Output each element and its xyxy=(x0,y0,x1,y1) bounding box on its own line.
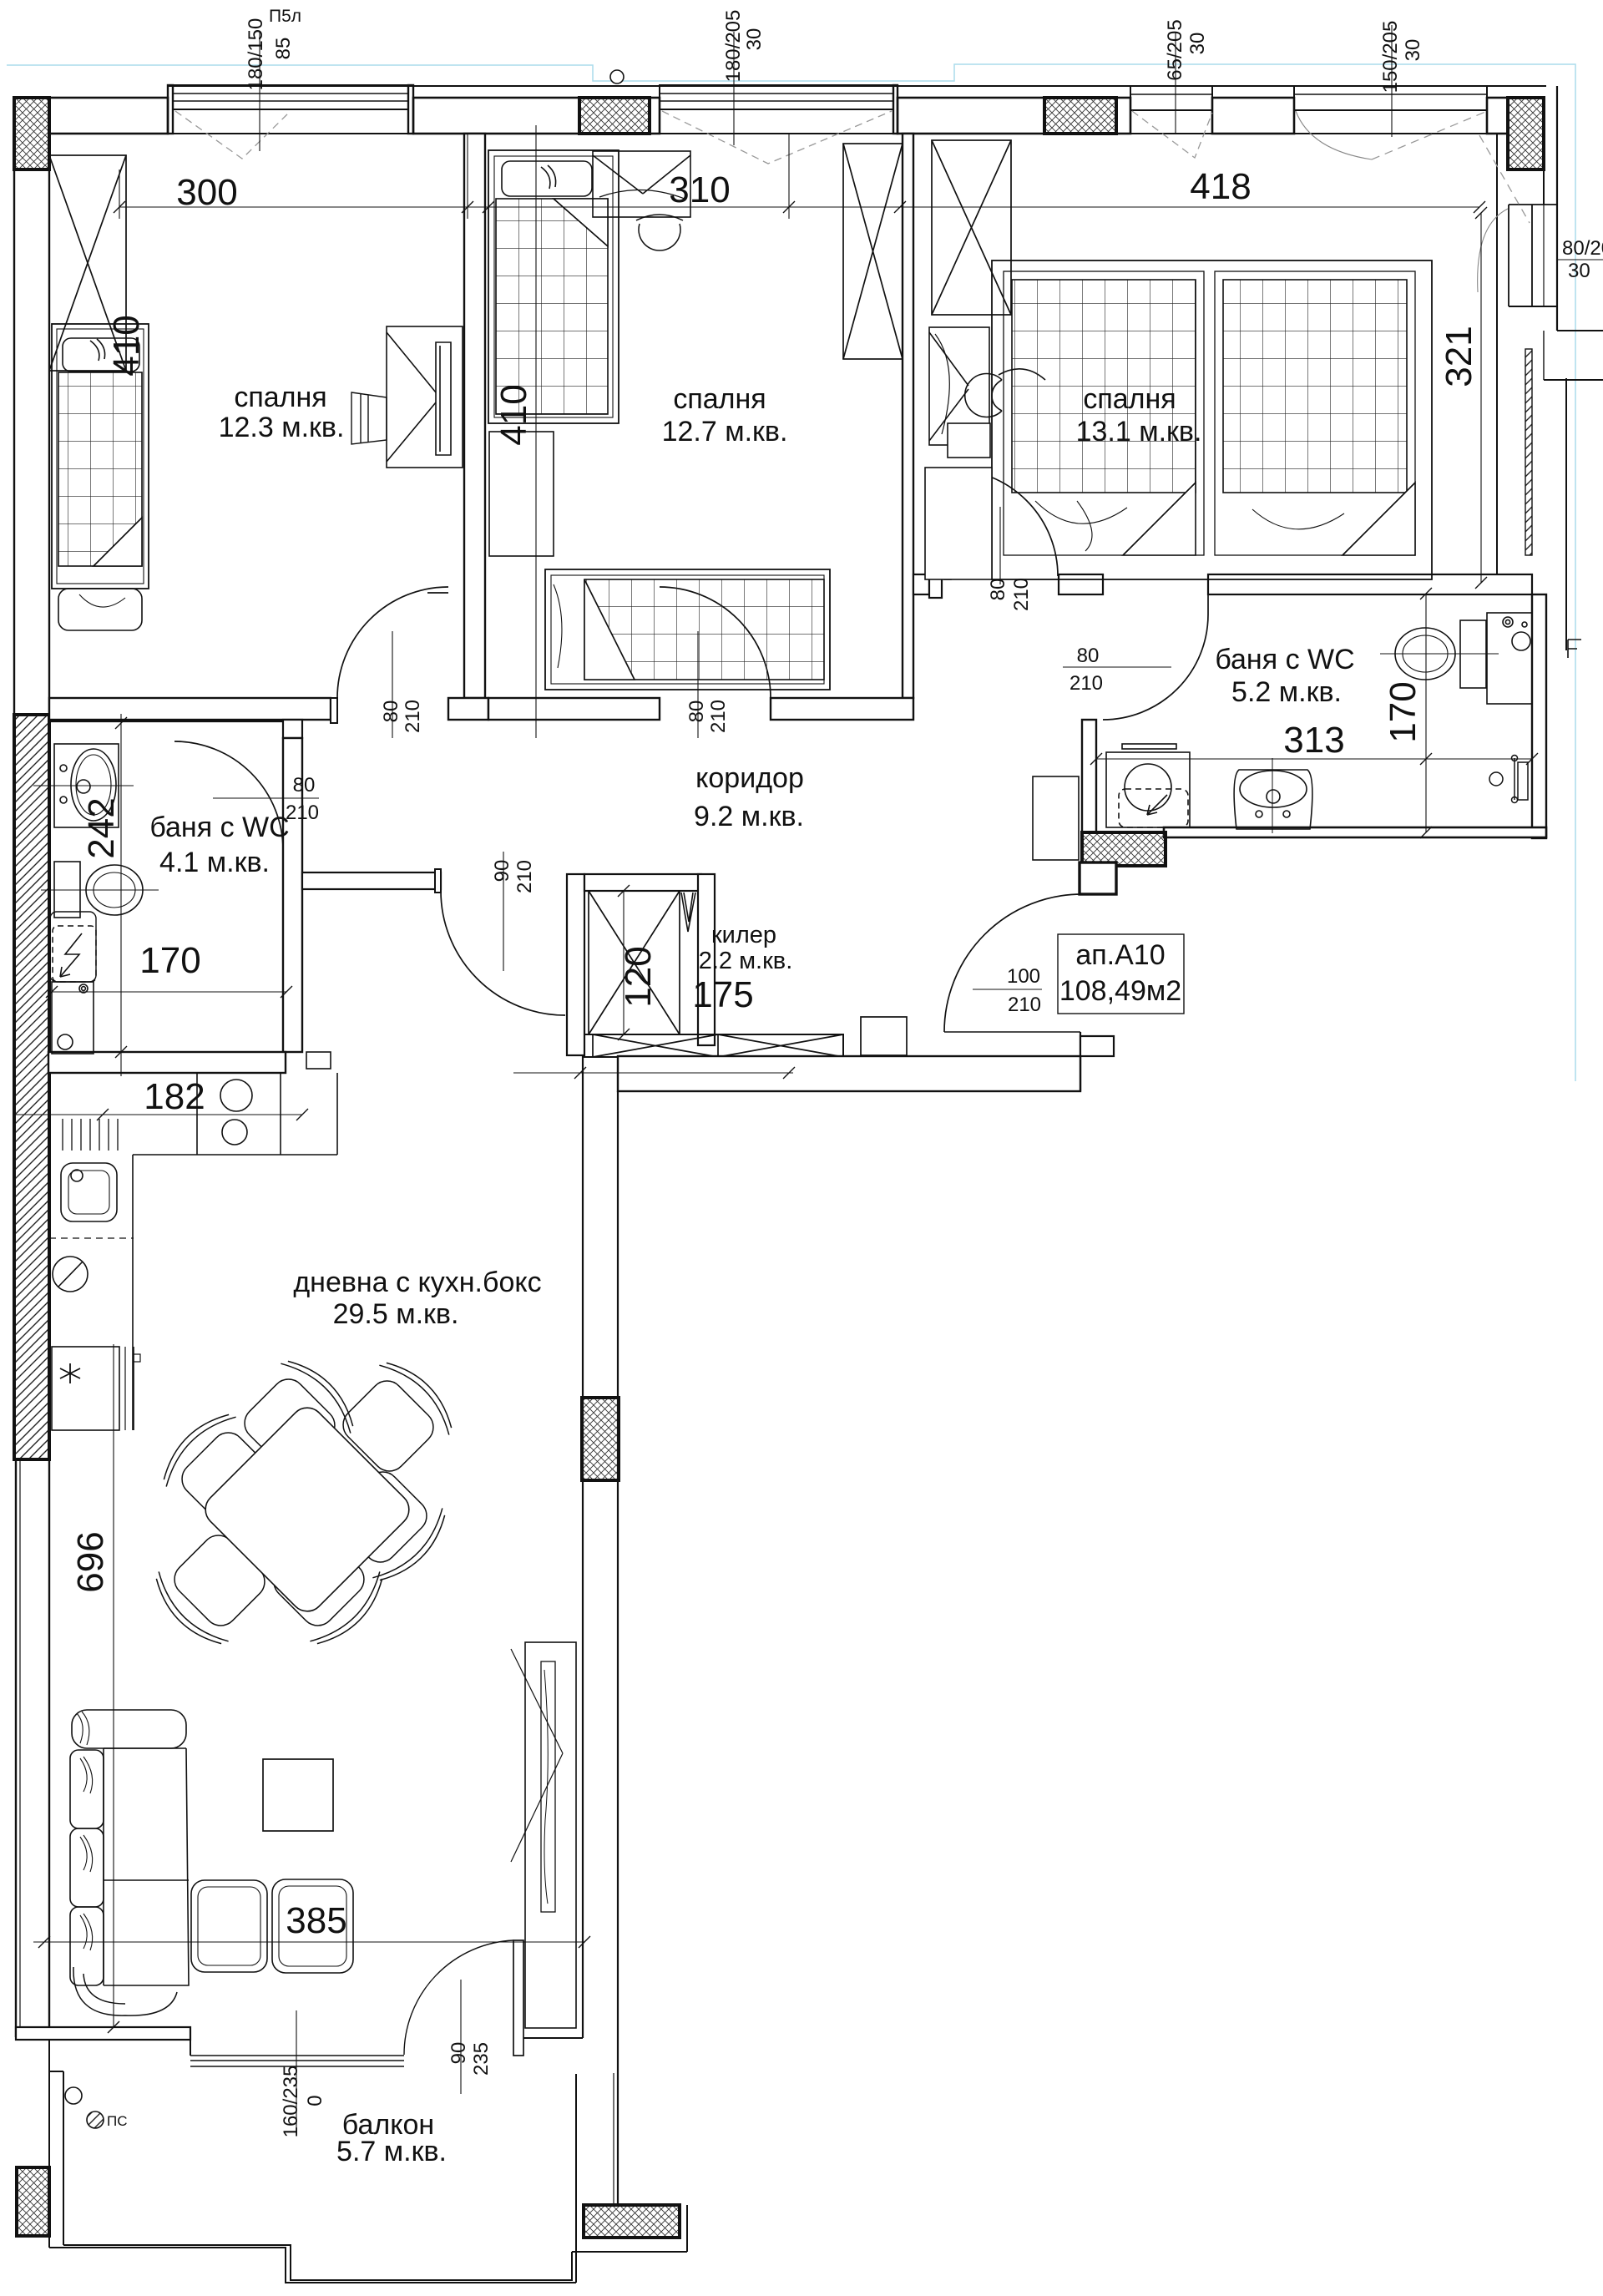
svg-text:29.5 м.кв.: 29.5 м.кв. xyxy=(333,1298,459,1330)
svg-text:коридор: коридор xyxy=(695,762,804,794)
svg-text:85: 85 xyxy=(272,38,295,60)
svg-text:баня с WC: баня с WC xyxy=(149,812,289,843)
svg-text:418: 418 xyxy=(1190,166,1251,207)
svg-text:80/205: 80/205 xyxy=(1562,237,1603,260)
svg-text:спалня: спалня xyxy=(234,382,326,413)
svg-text:2.2 м.кв.: 2.2 м.кв. xyxy=(699,948,793,974)
svg-text:80: 80 xyxy=(380,700,402,723)
svg-text:65/205: 65/205 xyxy=(1164,19,1186,80)
svg-text:5.7 м.кв.: 5.7 м.кв. xyxy=(336,2136,447,2167)
svg-text:410: 410 xyxy=(106,315,147,376)
svg-text:150/205: 150/205 xyxy=(1379,21,1402,94)
svg-text:210: 210 xyxy=(707,700,730,733)
svg-text:90: 90 xyxy=(491,860,513,882)
svg-text:9.2 м.кв.: 9.2 м.кв. xyxy=(694,801,804,832)
svg-text:80: 80 xyxy=(987,579,1009,601)
svg-text:спалня: спалня xyxy=(1083,383,1176,415)
svg-text:210: 210 xyxy=(1070,672,1103,695)
svg-text:175: 175 xyxy=(692,974,753,1015)
svg-text:30: 30 xyxy=(1186,33,1209,55)
svg-text:170: 170 xyxy=(1383,681,1423,742)
svg-text:30: 30 xyxy=(743,28,766,51)
svg-text:410: 410 xyxy=(493,384,534,445)
svg-text:313: 313 xyxy=(1283,720,1344,761)
svg-text:182: 182 xyxy=(144,1076,205,1117)
svg-text:210: 210 xyxy=(1008,994,1041,1016)
svg-text:80: 80 xyxy=(1077,645,1100,667)
svg-text:160/235: 160/235 xyxy=(280,2066,302,2138)
svg-text:дневна с кухн.бокс: дневна с кухн.бокс xyxy=(293,1267,541,1298)
svg-text:385: 385 xyxy=(286,1900,346,1941)
svg-text:ПС: ПС xyxy=(107,2113,128,2129)
svg-text:310: 310 xyxy=(669,169,730,210)
svg-text:300: 300 xyxy=(176,172,237,213)
svg-text:210: 210 xyxy=(286,802,319,824)
svg-text:80: 80 xyxy=(293,774,316,797)
svg-text:4.1 м.кв.: 4.1 м.кв. xyxy=(159,847,270,878)
svg-text:12.3 м.кв.: 12.3 м.кв. xyxy=(219,412,345,443)
svg-text:210: 210 xyxy=(1010,578,1033,611)
svg-text:321: 321 xyxy=(1439,326,1479,387)
svg-text:170: 170 xyxy=(139,940,200,981)
svg-text:90: 90 xyxy=(448,2042,470,2065)
svg-text:13.1 м.кв.: 13.1 м.кв. xyxy=(1076,416,1202,448)
svg-text:100: 100 xyxy=(1007,965,1040,988)
svg-text:120: 120 xyxy=(618,946,659,1007)
svg-text:12.7 м.кв.: 12.7 м.кв. xyxy=(662,416,788,448)
svg-text:696: 696 xyxy=(70,1531,111,1592)
svg-text:5.2 м.кв.: 5.2 м.кв. xyxy=(1231,676,1342,708)
svg-text:108,49м2: 108,49м2 xyxy=(1059,975,1181,1007)
svg-text:0: 0 xyxy=(304,2095,326,2106)
svg-text:180/205: 180/205 xyxy=(722,10,745,83)
svg-text:П5л: П5л xyxy=(269,7,301,26)
svg-text:спалня: спалня xyxy=(673,383,766,415)
svg-text:ап.А10: ап.А10 xyxy=(1075,939,1165,971)
svg-text:30: 30 xyxy=(1568,260,1590,282)
svg-text:80: 80 xyxy=(685,700,708,723)
svg-text:килер: килер xyxy=(711,922,776,948)
svg-text:242: 242 xyxy=(81,797,122,858)
svg-text:235: 235 xyxy=(470,2042,493,2076)
svg-text:180/150: 180/150 xyxy=(245,18,267,91)
svg-text:210: 210 xyxy=(402,700,424,733)
svg-text:30: 30 xyxy=(1402,39,1424,62)
svg-text:баня с WC: баня с WC xyxy=(1215,644,1354,675)
svg-text:210: 210 xyxy=(513,860,536,893)
